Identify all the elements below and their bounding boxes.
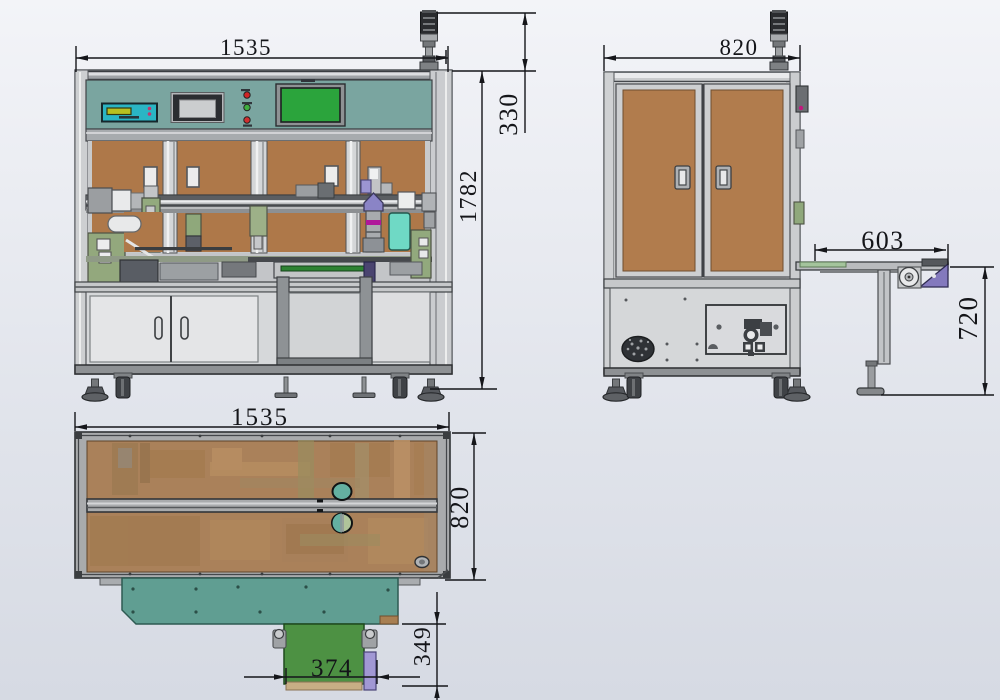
svg-text:330: 330 <box>494 92 523 136</box>
svg-text:820: 820 <box>720 35 759 60</box>
svg-text:603: 603 <box>861 226 905 255</box>
svg-text:349: 349 <box>410 626 436 667</box>
svg-text:1535: 1535 <box>231 404 289 431</box>
svg-text:374: 374 <box>311 655 353 682</box>
svg-text:1535: 1535 <box>220 35 272 60</box>
svg-text:720: 720 <box>953 296 983 341</box>
svg-text:820: 820 <box>445 485 474 529</box>
svg-text:1782: 1782 <box>456 169 482 223</box>
